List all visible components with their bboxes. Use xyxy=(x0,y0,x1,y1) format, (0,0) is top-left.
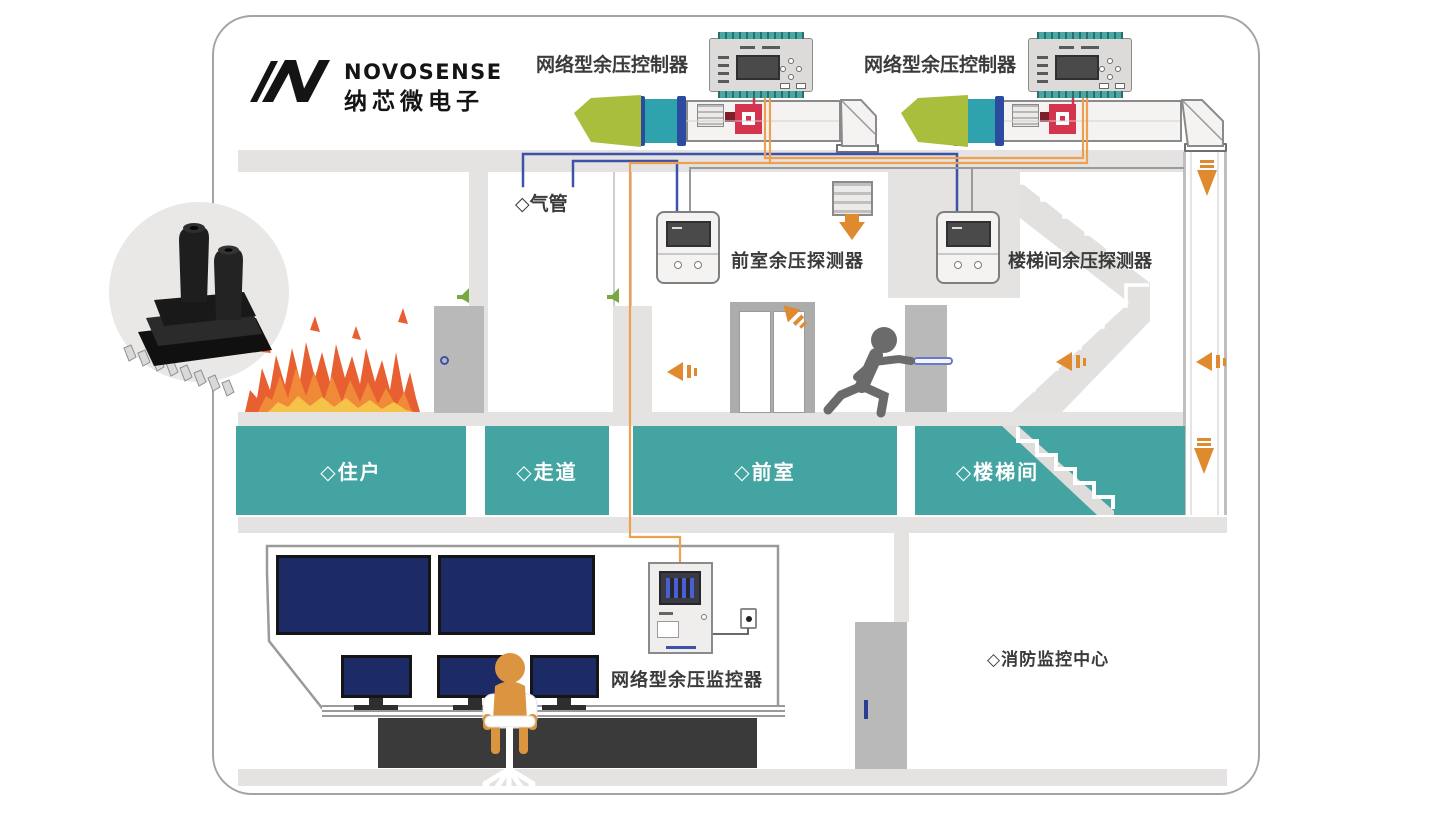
controller-screen xyxy=(1055,55,1099,80)
terminal-strip xyxy=(718,91,804,98)
room-resident-label: ◇住户 xyxy=(236,426,466,515)
power-cord xyxy=(713,629,748,634)
fire-control-center-label: ◇消防监控中心 xyxy=(987,645,1109,670)
logo-brand-cn-text: 纳芯微电子 xyxy=(344,82,484,116)
fire-icon xyxy=(245,308,420,412)
network-monitor-device xyxy=(648,562,713,654)
diagram-art xyxy=(0,0,1456,819)
down-arrow-icon xyxy=(839,214,865,240)
novosense-logo-icon xyxy=(250,60,330,102)
controller-label-right: 网络型余压控制器 xyxy=(864,50,1016,77)
terminal-strip xyxy=(1037,91,1123,98)
controller-button xyxy=(1099,83,1109,89)
room-front-label: ◇前室 xyxy=(633,426,897,515)
terminal-strip xyxy=(1037,32,1123,39)
pressure-controller-right xyxy=(1028,38,1132,92)
diagram-canvas: NOVOSENSE 纳芯微电子 网络型余压控制器 网络型余压控制器 ◇气管 前室… xyxy=(0,0,1456,819)
left-arrow-icon xyxy=(1196,352,1226,371)
front-room-detector-device xyxy=(656,211,720,284)
stairwell-detector-label: 楼梯间余压探测器 xyxy=(1008,247,1152,273)
room-corridor-label: ◇走道 xyxy=(485,426,609,515)
terminal-strip xyxy=(718,32,804,39)
front-room-detector-label: 前室余压探测器 xyxy=(731,247,864,273)
office-chair-icon xyxy=(483,716,536,792)
stairwell-detector-device xyxy=(936,211,1000,284)
detector-screen xyxy=(666,221,711,247)
controller-button xyxy=(1115,83,1125,89)
controller-label-left: 网络型余压控制器 xyxy=(536,50,688,77)
air-tube-label: ◇气管 xyxy=(515,189,568,216)
logo-brand-text: NOVOSENSE xyxy=(344,60,503,84)
elevator-arrow-icon xyxy=(777,299,810,332)
duct-elbow xyxy=(841,100,876,146)
pressure-sensor-chip xyxy=(124,223,272,396)
down-arrow-icon xyxy=(1194,438,1214,474)
fan-icon xyxy=(574,95,641,147)
stairs-upper xyxy=(1012,182,1151,412)
running-person-icon xyxy=(828,327,911,413)
monitor-device-button xyxy=(701,614,707,620)
detector-screen xyxy=(946,221,991,247)
signal-wire-gray xyxy=(690,168,1183,211)
controller-screen xyxy=(736,55,780,80)
down-arrow-icon xyxy=(1197,160,1217,196)
monitor-device-slot xyxy=(657,621,679,638)
pressure-controller-left xyxy=(709,38,813,92)
network-monitor-label: 网络型余压监控器 xyxy=(611,666,763,692)
fan-icon xyxy=(901,95,968,147)
left-arrow-icon xyxy=(667,362,697,381)
room-stairwell-label: ◇楼梯间 xyxy=(915,426,1080,515)
controller-button xyxy=(780,83,790,89)
air-tube-blue xyxy=(573,161,677,211)
controller-button xyxy=(796,83,806,89)
monitor-device-screen xyxy=(659,571,701,605)
alarm-icon xyxy=(457,288,619,303)
